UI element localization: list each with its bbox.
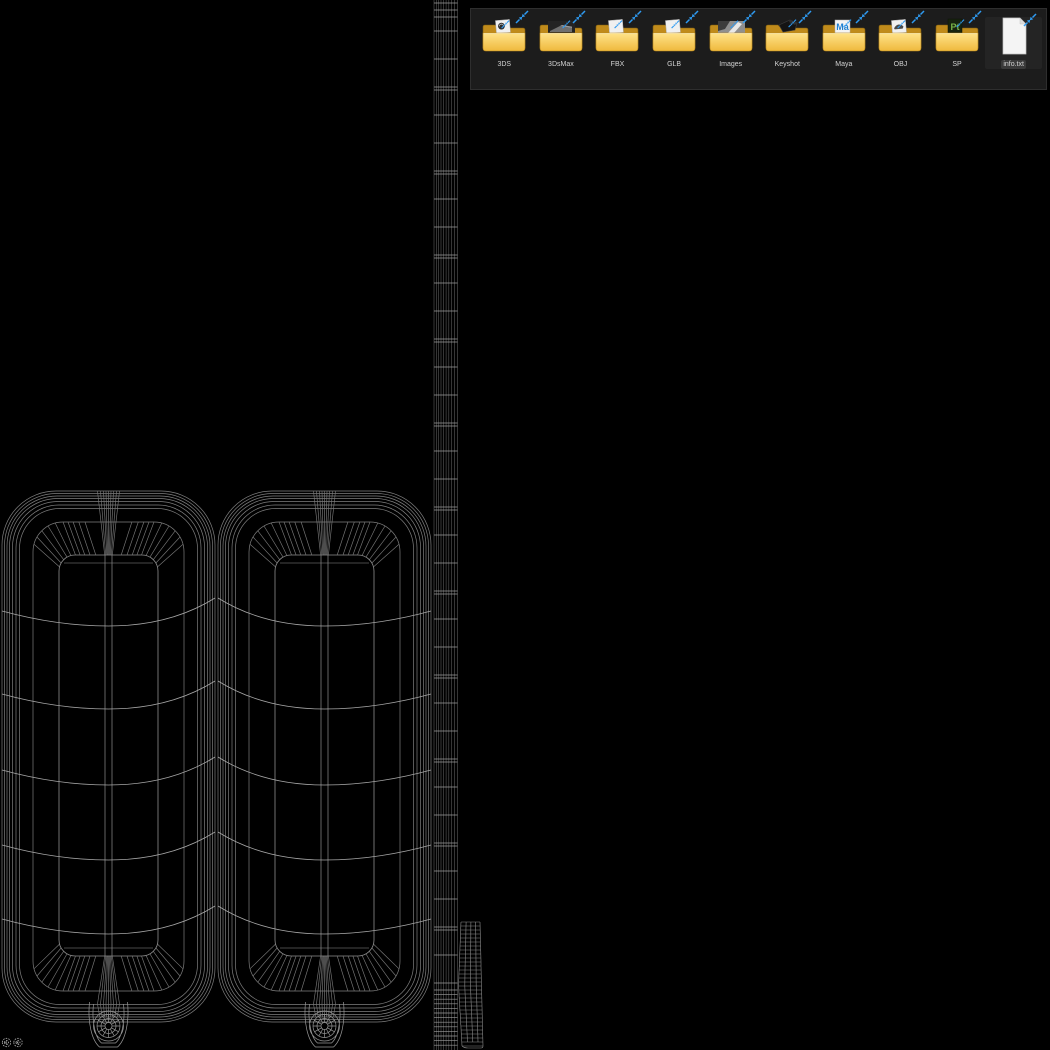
shell-face bbox=[275, 555, 374, 956]
compressed-badge-icon bbox=[855, 10, 869, 24]
file-item-keyshot[interactable]: Keyshot bbox=[759, 17, 816, 69]
file-item-fbx[interactable]: FBX bbox=[589, 17, 646, 69]
file-item-info-txt[interactable]: info.txt bbox=[985, 17, 1042, 69]
files-panel: 3DS 3DsMax bbox=[470, 8, 1047, 90]
file-item-label: GLB bbox=[665, 60, 683, 69]
file-item-3dsmax[interactable]: 3DsMax bbox=[533, 17, 590, 69]
folder-icon-wrap bbox=[708, 17, 754, 55]
file-item-3ds[interactable]: 3DS bbox=[476, 17, 533, 69]
shell-rim-mesh bbox=[2, 491, 215, 1022]
shell-belt-lines bbox=[218, 598, 431, 934]
svg-text:Pt: Pt bbox=[951, 22, 960, 32]
folder-icon-wrap: Ma bbox=[821, 17, 867, 55]
shell-inner-rim bbox=[249, 522, 400, 991]
folder-icon-wrap bbox=[651, 17, 697, 55]
wheel-hub-mesh bbox=[2, 1038, 22, 1046]
file-item-label: Keyshot bbox=[773, 60, 802, 69]
folder-icon-wrap: Pt bbox=[934, 17, 980, 55]
compressed-badge-icon bbox=[968, 10, 982, 24]
file-item-maya[interactable]: Ma Maya bbox=[816, 17, 873, 69]
compressed-badge-icon bbox=[628, 10, 642, 24]
file-item-label: 3DS bbox=[495, 60, 513, 69]
file-item-images[interactable]: Images bbox=[702, 17, 759, 69]
compressed-badge-icon bbox=[515, 10, 529, 24]
handle-strip-verticals bbox=[434, 0, 458, 1050]
folder-icon-wrap bbox=[481, 17, 527, 55]
file-item-sp[interactable]: Pt SP bbox=[929, 17, 986, 69]
wheel-strip-edges bbox=[459, 922, 483, 1048]
compressed-badge-icon bbox=[1023, 13, 1037, 27]
folder-icon-wrap bbox=[538, 17, 584, 55]
folder-icon-wrap bbox=[594, 17, 640, 55]
shell-fan-mesh bbox=[34, 491, 183, 1017]
compressed-badge-icon bbox=[911, 10, 925, 24]
file-item-label: FBX bbox=[609, 60, 627, 69]
file-item-label: Images bbox=[717, 60, 744, 69]
file-item-label: OBJ bbox=[892, 60, 910, 69]
compressed-badge-icon bbox=[742, 10, 756, 24]
viewport-3d-wireframe[interactable] bbox=[0, 0, 1050, 1050]
file-item-label: SP bbox=[950, 60, 963, 69]
file-item-glb[interactable]: GLB bbox=[646, 17, 703, 69]
file-item-label: 3DsMax bbox=[546, 60, 576, 69]
compressed-badge-icon bbox=[798, 10, 812, 24]
shell-rim-mesh bbox=[218, 491, 431, 1022]
folder-icon-wrap bbox=[877, 17, 923, 55]
file-item-label: info.txt bbox=[1001, 60, 1026, 69]
file-item-obj[interactable]: OBJ bbox=[872, 17, 929, 69]
handle-strip-rungs bbox=[434, 3, 458, 1045]
file-item-label: Maya bbox=[833, 60, 854, 69]
compressed-badge-icon bbox=[685, 10, 699, 24]
file-icon-wrap bbox=[991, 17, 1037, 55]
folder-icon-wrap bbox=[764, 17, 810, 55]
svg-text:Ma: Ma bbox=[836, 22, 849, 32]
shell-belt-lines bbox=[2, 598, 215, 934]
shell-inner-rim bbox=[33, 522, 184, 991]
shell-fan-mesh bbox=[250, 491, 399, 1017]
shell-face bbox=[59, 555, 158, 956]
compressed-badge-icon bbox=[572, 10, 586, 24]
